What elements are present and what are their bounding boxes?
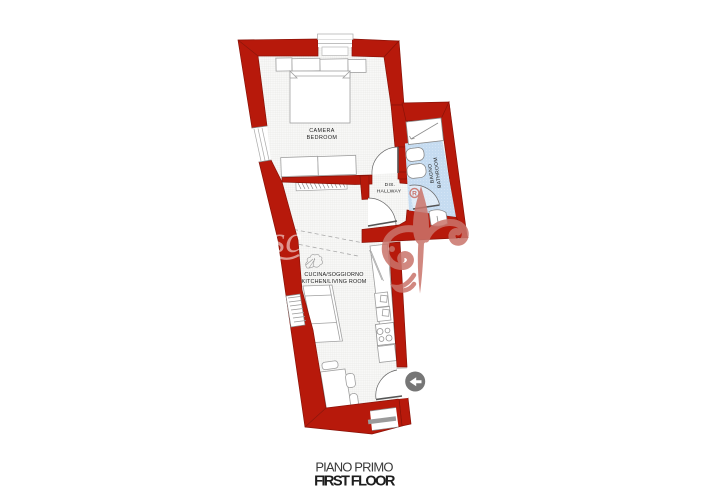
svg-text:FIRST FLOOR: FIRST FLOOR [314,474,396,490]
svg-text:BEDROOM: BEDROOM [307,135,338,141]
svg-text:KITCHEN/LIVING ROOM: KITCHEN/LIVING ROOM [302,279,367,285]
svg-text:PIANO PRIMO: PIANO PRIMO [315,459,393,474]
svg-text:DIS.: DIS. [385,182,396,188]
svg-text:HALLWAY: HALLWAY [377,189,402,195]
svg-text:CUCINA/SOGGIORNO: CUCINA/SOGGIORNO [304,272,363,278]
svg-text:R: R [412,191,417,198]
svg-text:CAMERA: CAMERA [309,128,334,134]
